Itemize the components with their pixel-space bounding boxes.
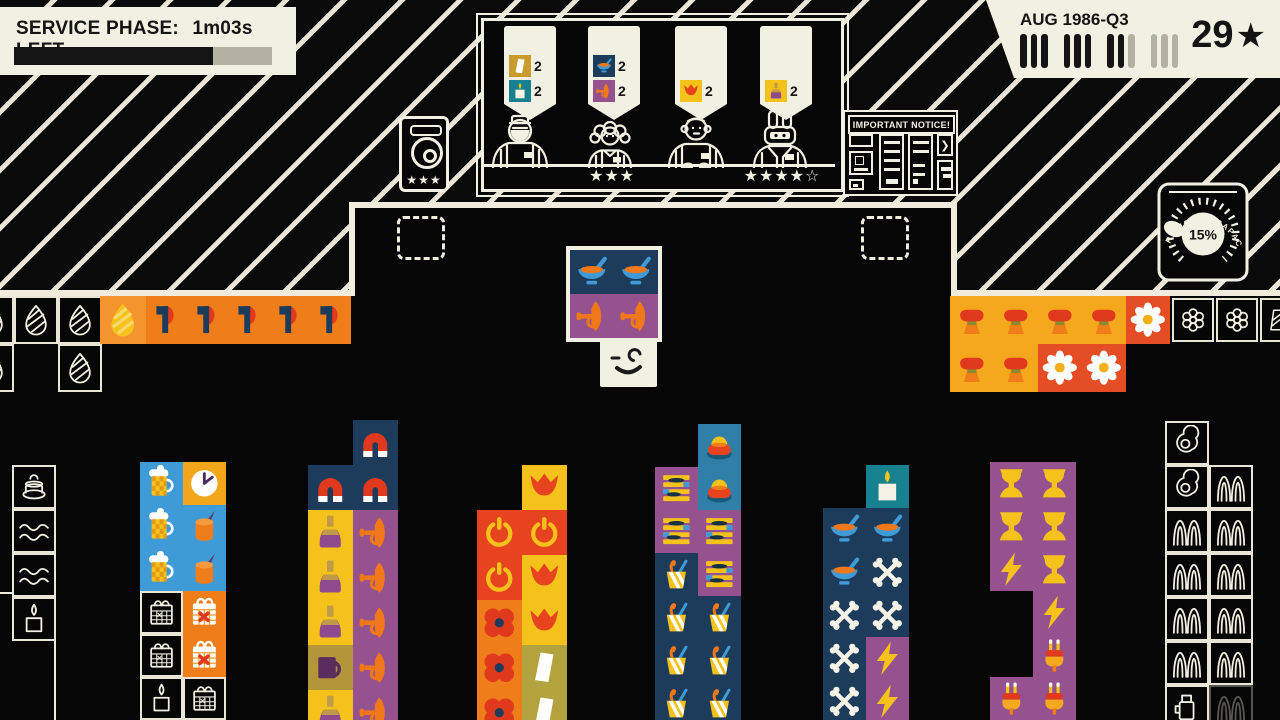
notice-glyph: [913, 179, 918, 184]
tile-waves-ghost: [12, 553, 56, 597]
request-bubble-pointer: [675, 104, 727, 120]
request-item: 2: [593, 55, 626, 77]
tile-trumpet[interactable]: [353, 555, 398, 600]
request-bubble-body: 22: [504, 26, 556, 104]
tile-lightning[interactable]: [1033, 591, 1076, 634]
tile-daisy[interactable]: [1038, 344, 1082, 392]
tile-power[interactable]: [477, 555, 522, 600]
request-item-icon-soup: [593, 55, 615, 77]
request-item: 2: [680, 80, 713, 102]
player-smile: [617, 367, 640, 372]
quarter-tick-group: [1020, 34, 1052, 68]
quarter-tick-bar: [1020, 34, 1027, 68]
tile-egg-ghost: [0, 344, 14, 392]
service-phase-panel: SERVICE PHASE: 1m03s LEFT: [0, 7, 296, 75]
tile-axe[interactable]: [146, 296, 187, 344]
tile-flower-ghost: [1216, 298, 1258, 342]
tile-candle-blue[interactable]: [183, 505, 226, 548]
notice-card: [879, 134, 904, 190]
tile-bottle[interactable]: [308, 510, 353, 555]
request-item-icon-wedge-gold: [509, 55, 531, 77]
tile-grass-ghost-faint: [1209, 685, 1253, 720]
tile-candle-ghost: [140, 677, 183, 720]
wall-left-edge: [349, 202, 355, 296]
notice-lines: [854, 168, 868, 172]
tile-friedegg-ghost: [1165, 421, 1209, 465]
tile-axe[interactable]: [228, 296, 269, 344]
request-item-count: 2: [534, 83, 542, 99]
tile-axe[interactable]: [310, 296, 351, 344]
tile-candle-teal[interactable]: [866, 465, 909, 508]
request-bubble-3: 2: [675, 26, 727, 120]
request-bubble-body: 2: [760, 26, 812, 104]
notice-glyph: [943, 174, 951, 178]
game-screen: SERVICE PHASE: 1m03s LEFT AUG 1986-Q3 29…: [0, 0, 1280, 720]
tile-ham[interactable]: [950, 344, 994, 392]
service-progress-bar: [14, 47, 272, 65]
request-item-icon-tulip: [680, 80, 702, 102]
request-item-icon-bottle: [765, 80, 787, 102]
tile-goblet[interactable]: [1033, 548, 1076, 591]
tile-ham[interactable]: [994, 296, 1038, 344]
tile-bottle[interactable]: [308, 555, 353, 600]
tile-milkshake[interactable]: [655, 596, 698, 639]
tile-goblet[interactable]: [990, 462, 1033, 505]
tile-bones[interactable]: [866, 551, 909, 594]
tile-goblet[interactable]: [1033, 505, 1076, 548]
notice-card: [849, 134, 873, 147]
notice-glyph: [886, 179, 898, 184]
tile-candle-ghost: [12, 597, 56, 641]
notice-card: [908, 134, 933, 190]
tile-flask-ghost: [1165, 685, 1209, 720]
request-item-count: 2: [790, 83, 798, 99]
tile-friedegg-ghost: [1165, 465, 1209, 509]
tile-egg-solid[interactable]: [100, 296, 146, 344]
tile-tulip[interactable]: [522, 465, 567, 510]
request-item-count: 2: [618, 83, 626, 99]
player-wilmot[interactable]: [600, 338, 657, 387]
tile-lightning[interactable]: [866, 637, 909, 680]
tile-cake[interactable]: [698, 424, 741, 467]
speaker-dot-icon: [423, 149, 437, 163]
tile-soup[interactable]: [823, 508, 866, 551]
tile-tulip[interactable]: [522, 555, 567, 600]
tile-trumpet[interactable]: [353, 690, 398, 720]
tile-magnet[interactable]: [353, 420, 398, 465]
speaker-slot: [410, 125, 442, 136]
tile-wedge[interactable]: [522, 645, 567, 690]
tile-power[interactable]: [477, 510, 522, 555]
tile-ham[interactable]: [950, 296, 994, 344]
request-bubble-4: 2: [760, 26, 812, 120]
notice-glyph: [855, 156, 864, 165]
tile-calendar[interactable]: [183, 591, 226, 634]
date-score-panel: AUG 1986-Q3 29 ★: [986, 0, 1280, 78]
request-item-count: 2: [534, 58, 542, 74]
service-phase-text: SERVICE PHASE:: [16, 18, 179, 39]
shelf-tick-line: [0, 592, 12, 594]
request-bubble-pointer: [760, 104, 812, 120]
tile-magnet[interactable]: [353, 465, 398, 510]
tile-egg-ghost: [58, 344, 102, 392]
quarter-tick-bar: [1172, 34, 1179, 68]
tile-beer[interactable]: [140, 462, 183, 505]
tile-goblet[interactable]: [990, 505, 1033, 548]
tile-cake-ghost: [12, 465, 56, 509]
request-bubble-1: 22: [504, 26, 556, 120]
quarter-tick-bar: [1151, 34, 1158, 68]
tile-grass-ghost: [1209, 465, 1253, 509]
tile-egg-ghost: [58, 296, 102, 344]
notice-lines: [853, 184, 858, 188]
tile-candle-blue[interactable]: [183, 548, 226, 591]
star-score: 29 ★: [1191, 14, 1266, 57]
quarter-tick-bar: [1085, 34, 1092, 68]
quarter-tick-bar: [1107, 34, 1114, 68]
tile-milkshake[interactable]: [698, 682, 741, 720]
quarter-tick-bar: [1074, 34, 1081, 68]
tile-trumpet[interactable]: [614, 294, 658, 338]
tile-soup[interactable]: [570, 250, 614, 294]
tile-axe[interactable]: [187, 296, 228, 344]
tile-stripes[interactable]: [698, 553, 741, 596]
customer-bearded-man: [488, 114, 552, 168]
tile-poppy[interactable]: [477, 645, 522, 690]
request-bubble-pointer: [588, 104, 640, 120]
tile-waves-ghost: [12, 509, 56, 553]
request-bubble-body: 2: [675, 26, 727, 104]
tile-grass-ghost: [1165, 597, 1209, 641]
request-item: 2: [765, 80, 798, 102]
request-item: 2: [593, 80, 626, 102]
quarter-tick-group: [1151, 34, 1183, 68]
request-bubble-2: 22: [588, 26, 640, 120]
request-item: 2: [509, 55, 542, 77]
tile-milkshake[interactable]: [655, 682, 698, 720]
speaker-cone-icon: [411, 137, 443, 169]
tile-grass-ghost: [1209, 597, 1253, 641]
tile-milkshake[interactable]: [655, 639, 698, 682]
tile-grass-ghost: [1209, 509, 1253, 553]
tile-ham[interactable]: [994, 344, 1038, 392]
tile-beer[interactable]: [140, 505, 183, 548]
tile-flower-ghost: [1172, 298, 1214, 342]
wall-right-edge: [951, 202, 957, 296]
service-progress-fill: [14, 47, 213, 65]
quarter-tick-bar: [1031, 34, 1038, 68]
customer-2-rating: ★★★: [576, 166, 648, 186]
tile-grass-ghost: [1209, 553, 1253, 597]
tile-milkshake[interactable]: [698, 596, 741, 639]
drop-slot-right[interactable]: [861, 216, 909, 260]
customer-bald-man: [664, 114, 728, 168]
star-icon: ★: [1236, 16, 1266, 56]
notice-lines: [913, 164, 925, 177]
notice-title: IMPORTANT NOTICE!: [848, 115, 955, 134]
tile-grass-ghost: [1165, 553, 1209, 597]
customer-4-rating: ★★★★☆: [738, 166, 826, 186]
request-item-icon-candle-teal: [509, 80, 531, 102]
tile-calendar-ghost: [140, 591, 183, 634]
notice-lines: [913, 141, 929, 154]
tile-clock[interactable]: [183, 462, 226, 505]
tile-calendar[interactable]: [183, 634, 226, 677]
tile-egg-ghost: [14, 296, 58, 344]
operational-capacity-gauge: 15% OPERATIONAL CAPACITY: [1157, 182, 1249, 282]
notice-board: IMPORTANT NOTICE! ❯: [843, 110, 958, 196]
tile-magnet[interactable]: [308, 465, 353, 510]
notice-card: ❯: [937, 134, 953, 156]
tile-wedgestripe-ghost: [1260, 298, 1280, 342]
tile-mug[interactable]: [308, 645, 353, 690]
quarter-tick-bar: [1041, 34, 1048, 68]
gauge-value: 15%: [1189, 227, 1218, 243]
tile-tulip[interactable]: [522, 600, 567, 645]
tile-calendar-ghost: [140, 634, 183, 677]
tile-stripes[interactable]: [655, 467, 698, 510]
player-eye-right: [629, 350, 640, 361]
tile-goblet[interactable]: [1033, 462, 1076, 505]
tile-bones[interactable]: [823, 637, 866, 680]
request-item: 2: [509, 80, 542, 102]
quarter-tick-bar: [1128, 34, 1135, 68]
tile-plug[interactable]: [1033, 677, 1076, 720]
tile-bones[interactable]: [823, 680, 866, 720]
quarter-tick-group: [1064, 34, 1096, 68]
tile-milkshake[interactable]: [698, 639, 741, 682]
tile-bones[interactable]: [823, 594, 866, 637]
quarter-tick-group: [1107, 34, 1139, 68]
tile-cake[interactable]: [698, 467, 741, 510]
request-item-count: 2: [705, 83, 713, 99]
quarter-tick-bar: [1118, 34, 1125, 68]
tile-milkshake[interactable]: [655, 553, 698, 596]
tile-lightning[interactable]: [866, 680, 909, 720]
tile-daisy[interactable]: [1082, 344, 1126, 392]
tile-trumpet[interactable]: [570, 294, 614, 338]
tile-soup[interactable]: [614, 250, 658, 294]
tile-ham[interactable]: [1038, 296, 1082, 344]
tile-lightning[interactable]: [990, 548, 1033, 591]
tile-poppy[interactable]: [477, 690, 522, 720]
tile-ham[interactable]: [1082, 296, 1126, 344]
speaker-rating: ★★★: [402, 173, 446, 187]
tile-stripes[interactable]: [698, 510, 741, 553]
tile-bottle[interactable]: [308, 600, 353, 645]
tile-grass-ghost: [1209, 641, 1253, 685]
notice-glyph: [941, 167, 951, 171]
request-bubble-pointer: [504, 104, 556, 120]
quarter-tick-bar: [1064, 34, 1071, 68]
star-count: 29: [1191, 14, 1233, 57]
tile-power[interactable]: [522, 510, 567, 555]
quarter-tick-bar: [1161, 34, 1168, 68]
tile-daisy[interactable]: [1126, 296, 1170, 344]
notice-card: [849, 151, 873, 175]
drop-slot-left[interactable]: [397, 216, 445, 260]
tile-plug[interactable]: [990, 677, 1033, 720]
tile-soup[interactable]: [823, 551, 866, 594]
tile-bones[interactable]: [866, 594, 909, 637]
notice-lines: [884, 141, 900, 171]
tile-grass-ghost: [1165, 509, 1209, 553]
tile-wedge[interactable]: [522, 690, 567, 720]
tile-plug[interactable]: [1033, 634, 1076, 677]
request-item-count: 2: [618, 58, 626, 74]
quarter-ticks: [1020, 34, 1194, 68]
tile-soup[interactable]: [866, 508, 909, 551]
tile-trumpet[interactable]: [353, 600, 398, 645]
tile-grass-ghost: [1165, 641, 1209, 685]
tile-bottle[interactable]: [308, 690, 353, 720]
tile-calendar-ghost: [183, 677, 226, 720]
tile-trumpet[interactable]: [353, 510, 398, 555]
notice-card: [937, 160, 953, 190]
tile-egg-ghost: [0, 296, 14, 344]
request-item-icon-trumpet: [593, 80, 615, 102]
speaker-box: ★★★: [399, 116, 449, 192]
wall-top-edge: [349, 202, 957, 208]
date-label: AUG 1986-Q3: [1020, 10, 1129, 30]
request-bubble-body: 22: [588, 26, 640, 104]
tile-poppy[interactable]: [477, 600, 522, 645]
customer-curly-haired-woman: [582, 120, 638, 168]
tile-trumpet[interactable]: [353, 645, 398, 690]
tile-axe[interactable]: [269, 296, 310, 344]
tile-stripes[interactable]: [655, 510, 698, 553]
tile-beer[interactable]: [140, 548, 183, 591]
notice-card: [849, 179, 864, 190]
